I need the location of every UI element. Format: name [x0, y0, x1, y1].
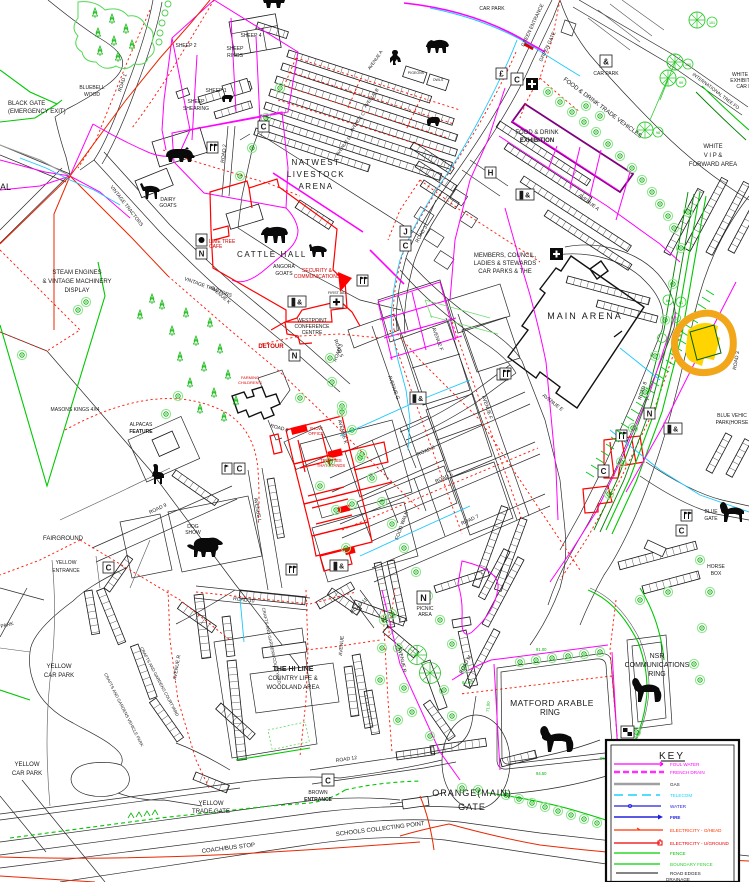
svg-text:CAR PARK: CAR PARK	[12, 771, 42, 777]
svg-text:COMMUNICATIONS: COMMUNICATIONS	[294, 274, 341, 280]
svg-text:FAIRGROUND: FAIRGROUND	[43, 536, 84, 542]
svg-text:C: C	[403, 242, 409, 251]
svg-text:ENTRANCE: ENTRANCE	[52, 568, 80, 574]
svg-text:GAS: GAS	[670, 782, 680, 787]
svg-text:N: N	[199, 250, 205, 259]
svg-text:H: H	[488, 169, 494, 178]
svg-text:PARK(HORSE: PARK(HORSE	[716, 420, 749, 426]
svg-text:MASONS KINGS 4X4: MASONS KINGS 4X4	[51, 407, 100, 413]
svg-text:N: N	[647, 410, 653, 419]
svg-text:CAFE: CAFE	[209, 244, 223, 250]
svg-text:BLACK GATE: BLACK GATE	[8, 101, 45, 107]
svg-text:LIVESTOCK: LIVESTOCK	[287, 170, 345, 179]
svg-text:64.00: 64.00	[462, 680, 473, 685]
svg-text:DRAINAGE: DRAINAGE	[666, 877, 690, 882]
svg-text:▋&: ▋&	[291, 297, 302, 306]
svg-text:FEATURE: FEATURE	[129, 429, 153, 435]
svg-text:J: J	[403, 228, 407, 237]
svg-text:OWLS: OWLS	[433, 78, 444, 82]
svg-text:BLUE: BLUE	[704, 509, 718, 515]
svg-text:SHEEP 1: SHEEP 1	[205, 88, 226, 94]
svg-text:KEY: KEY	[659, 751, 685, 762]
svg-text:ORANGE(MAIN): ORANGE(MAIN)	[432, 788, 512, 798]
svg-text:YELLOW: YELLOW	[14, 762, 39, 768]
svg-text:61: 61	[679, 301, 683, 305]
svg-text:94.50: 94.50	[536, 771, 547, 776]
svg-text:TELECOM: TELECOM	[670, 793, 692, 798]
svg-text:▋&: ▋&	[519, 190, 530, 199]
svg-text:MEMBERS, COUNCIL,: MEMBERS, COUNCIL,	[474, 253, 537, 259]
svg-text:V I P &: V I P &	[704, 153, 723, 159]
svg-text:STEAM ENGINES: STEAM ENGINES	[52, 270, 101, 276]
svg-text:RING: RING	[540, 708, 560, 717]
svg-text:CAR P: CAR P	[736, 84, 749, 90]
svg-text:C: C	[237, 465, 243, 474]
svg-text:THE HI LINE: THE HI LINE	[273, 666, 314, 673]
svg-text:AREA: AREA	[418, 612, 432, 618]
svg-text:YELLOW: YELLOW	[46, 664, 71, 670]
svg-text:WOOD: WOOD	[84, 92, 100, 98]
svg-text:CAR PARK: CAR PARK	[44, 673, 74, 679]
svg-text:MATFORD ARABLE: MATFORD ARABLE	[510, 698, 594, 708]
svg-text:ELECTRICITY - O/HEAD: ELECTRICITY - O/HEAD	[670, 828, 722, 833]
svg-text:FIRST AID: FIRST AID	[328, 291, 346, 295]
svg-text:91.00: 91.00	[536, 647, 547, 652]
svg-text:ELECTRICITY - U/GROUND: ELECTRICITY - U/GROUND	[670, 841, 730, 846]
svg-text:SHEEP 4: SHEEP 4	[240, 33, 261, 39]
svg-text:WATER: WATER	[670, 804, 687, 809]
svg-text:WOODLAND AREA: WOODLAND AREA	[266, 685, 319, 691]
svg-text:CAR PARK: CAR PARK	[479, 6, 505, 12]
svg-text:BOUNDARY FENCE: BOUNDARY FENCE	[670, 862, 713, 867]
svg-text:GOATS: GOATS	[159, 203, 177, 209]
svg-text:NATWEST: NATWEST	[291, 158, 340, 167]
svg-text:SHEEP: SHEEP	[227, 46, 245, 52]
svg-text:98: 98	[656, 131, 660, 135]
svg-text:COUNTRY LIFE &: COUNTRY LIFE &	[268, 676, 317, 682]
svg-text:WHITE: WHITE	[703, 144, 722, 150]
svg-text:BLUE VEHIC: BLUE VEHIC	[717, 413, 747, 419]
svg-text:COMMUNICATIONS: COMMUNICATIONS	[625, 662, 690, 669]
svg-text:HORSE: HORSE	[707, 564, 725, 570]
svg-text:RINGS: RINGS	[227, 53, 244, 59]
svg-text:RING: RING	[648, 671, 666, 678]
svg-text:GATE: GATE	[458, 802, 486, 812]
svg-text:GOATS: GOATS	[275, 271, 293, 277]
svg-text:NSR: NSR	[650, 653, 665, 660]
svg-text:DISPLAY: DISPLAY	[65, 288, 90, 294]
svg-text:FENCE: FENCE	[670, 851, 686, 856]
svg-text:FOUL WATER: FOUL WATER	[670, 762, 700, 767]
svg-text:TRADE GATE: TRADE GATE	[192, 809, 230, 815]
svg-text:BROWN: BROWN	[308, 790, 328, 796]
svg-text:DETOUR: DETOUR	[258, 344, 284, 350]
svg-text:71.00: 71.00	[485, 701, 491, 713]
svg-text:SHEEP: SHEEP	[188, 99, 206, 105]
svg-text:FRENCH DRAIN: FRENCH DRAIN	[670, 770, 705, 775]
svg-text:(EMERGENCY EXIT): (EMERGENCY EXIT)	[8, 109, 66, 115]
svg-text:PIGEONS: PIGEONS	[408, 71, 425, 75]
svg-text:100: 100	[685, 63, 691, 67]
svg-text:C: C	[514, 75, 520, 84]
svg-text:C: C	[325, 776, 331, 785]
svg-text:ROAD EDGES: ROAD EDGES	[670, 871, 701, 876]
svg-text:YELLOW: YELLOW	[198, 801, 223, 807]
svg-text:EXHIBITION: EXHIBITION	[520, 138, 554, 144]
svg-text:CAR PARK: CAR PARK	[593, 71, 619, 77]
svg-text:▋&: ▋&	[333, 561, 344, 570]
svg-text:AL: AL	[0, 182, 11, 192]
svg-text:99: 99	[679, 81, 683, 85]
svg-text:CENTRE: CENTRE	[302, 330, 323, 336]
svg-text:YELLOW: YELLOW	[56, 560, 77, 566]
svg-text:C: C	[679, 527, 685, 536]
svg-text:▋&: ▋&	[412, 394, 423, 403]
svg-text:CATTLE HALL: CATTLE HALL	[237, 250, 307, 259]
svg-text:C: C	[261, 123, 267, 132]
svg-text:ANGORA: ANGORA	[273, 264, 295, 270]
svg-text:&: &	[603, 57, 609, 66]
svg-text:CHILDREN'S: CHILDREN'S	[238, 380, 262, 385]
svg-text:SHEARING: SHEARING	[183, 106, 209, 112]
svg-text:101: 101	[709, 21, 715, 25]
svg-text:FIRE: FIRE	[670, 815, 680, 820]
svg-text:FORWARD AREA: FORWARD AREA	[689, 162, 737, 168]
svg-text:ARENA: ARENA	[298, 182, 333, 191]
svg-text:73: 73	[674, 317, 678, 321]
svg-text:BLUEBELL: BLUEBELL	[79, 85, 105, 91]
svg-text:FOOD & DRINK: FOOD & DRINK	[515, 130, 558, 136]
svg-text:N: N	[292, 352, 298, 361]
svg-text:CAR PARKS & THE: CAR PARKS & THE	[478, 269, 531, 275]
svg-text:ENTRANCE: ENTRANCE	[304, 797, 332, 803]
svg-text:OFFICE: OFFICE	[308, 431, 324, 436]
svg-text:60: 60	[666, 299, 670, 303]
svg-text:GATE: GATE	[704, 516, 718, 522]
svg-text:ALPACAS: ALPACAS	[130, 422, 153, 428]
svg-text:C: C	[601, 467, 607, 476]
svg-text:SHEEP 2: SHEEP 2	[175, 43, 196, 49]
svg-text:BOX: BOX	[711, 571, 722, 577]
svg-text:N: N	[420, 593, 427, 603]
svg-text:C: C	[106, 564, 112, 573]
svg-text:MAIN ARENA: MAIN ARENA	[547, 311, 623, 321]
svg-text:& VINTAGE MACHINERY: & VINTAGE MACHINERY	[42, 279, 111, 285]
svg-text:SHOW: SHOW	[185, 530, 201, 536]
svg-text:LADIES & STEWARDS: LADIES & STEWARDS	[474, 261, 536, 267]
svg-text:▋&: ▋&	[667, 424, 678, 433]
svg-text:£: £	[499, 70, 504, 79]
